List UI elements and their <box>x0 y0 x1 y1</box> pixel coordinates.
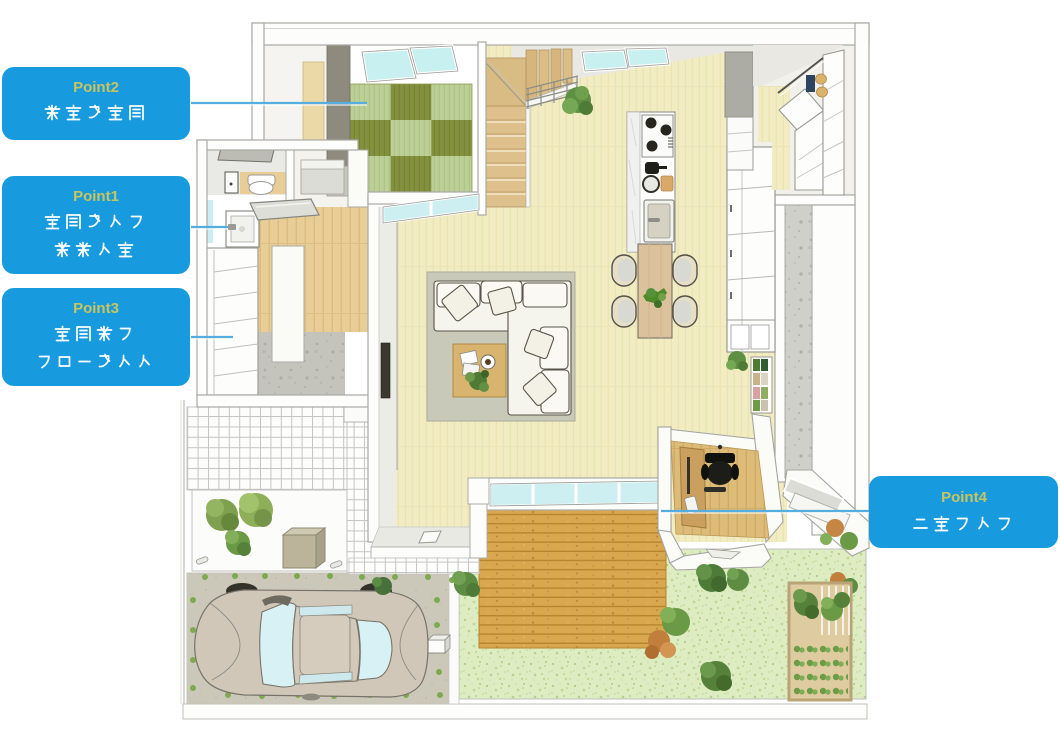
svg-text:Point3: Point3 <box>73 300 119 317</box>
svg-text:Point1: Point1 <box>73 188 119 205</box>
svg-text:Point4: Point4 <box>941 489 987 506</box>
svg-text:Point2: Point2 <box>73 79 119 96</box>
